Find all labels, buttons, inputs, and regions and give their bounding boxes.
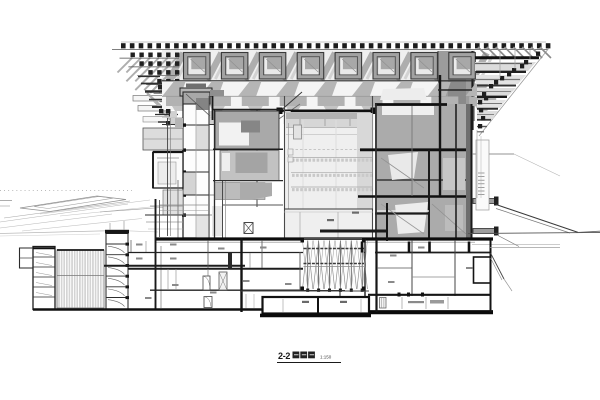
svg-text:2-2: 2-2 — [278, 351, 290, 361]
svg-text:1:150: 1:150 — [320, 355, 332, 360]
